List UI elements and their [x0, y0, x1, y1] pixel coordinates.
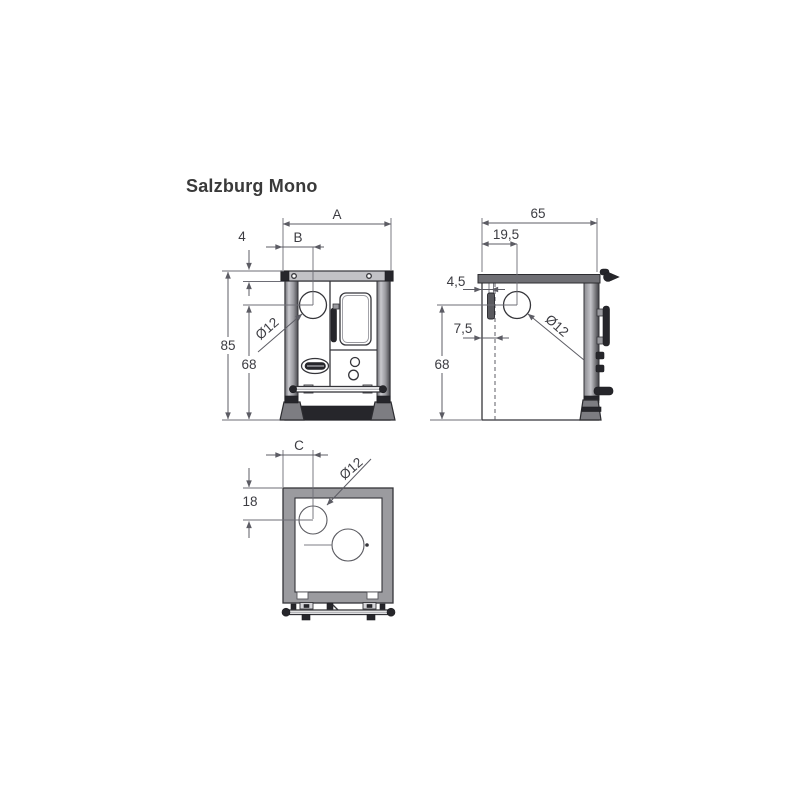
dim-label-diameter: Ø12	[542, 312, 571, 340]
front-top-plate	[281, 271, 393, 281]
side-plate-knob-tip	[611, 274, 619, 281]
control-knob-lower	[349, 370, 359, 380]
dim-label-C: C	[294, 438, 304, 453]
oven-door-handle	[331, 308, 337, 342]
hotplate-dot	[365, 543, 369, 547]
front-view: A B 4 85 68 Ø12	[216, 207, 395, 420]
front-left-pillar	[285, 281, 298, 402]
control-knob-upper	[351, 358, 360, 367]
side-top-plate	[478, 275, 600, 284]
dim-label-B: B	[293, 230, 302, 245]
side-door-handle	[603, 306, 610, 346]
oven-handle-bracket	[333, 304, 339, 309]
side-hinge-lower	[596, 365, 604, 372]
front-left-foot	[280, 402, 304, 420]
top-latch-lever	[333, 605, 338, 610]
top-view: C 18 Ø12	[238, 438, 395, 620]
dim-label-85: 85	[220, 338, 235, 353]
side-towel-bar-end	[594, 387, 613, 395]
front-left-pillar-band	[285, 396, 298, 403]
side-foot-band	[582, 407, 601, 412]
dim-label-68: 68	[434, 357, 449, 372]
hotplate-ring	[332, 529, 364, 561]
front-plate-bolt-left	[292, 274, 297, 279]
front-right-pillar	[377, 281, 390, 402]
top-bar-cap-right	[387, 608, 395, 616]
dim-label-A: A	[332, 207, 341, 222]
towel-bar-cap-left	[289, 386, 296, 393]
oven-window	[340, 293, 371, 345]
dim-label-diameter: Ø12	[252, 315, 281, 343]
dim-label-65: 65	[530, 206, 545, 221]
top-bar-cap-left	[282, 608, 290, 616]
front-right-foot	[371, 402, 395, 420]
front-plate-cap-right	[385, 271, 393, 281]
towel-bar-cap-right	[379, 386, 386, 393]
dim-label-diameter: Ø12	[336, 455, 365, 483]
top-bracket-slot-right	[367, 605, 372, 608]
flue-collar-flange	[488, 293, 495, 319]
dim-label-4: 4	[238, 229, 246, 244]
top-stub-foot-left	[302, 615, 310, 621]
stove-dimension-drawing: A B 4 85 68 Ø12	[0, 0, 800, 800]
dim-label-19-5: 19,5	[493, 227, 519, 242]
dim-label-7-5: 7,5	[454, 321, 473, 336]
cooktop-tab-left	[297, 592, 308, 599]
dim-label-4-5: 4,5	[447, 274, 466, 289]
front-right-pillar-band	[377, 396, 390, 403]
cooktop-tab-right	[367, 592, 378, 599]
dim-label-18: 18	[242, 494, 257, 509]
top-stub-foot-right	[367, 615, 375, 621]
front-base-band	[293, 406, 383, 420]
technical-drawing-page: Salzburg Mono	[0, 0, 800, 800]
front-plate-bolt-right	[367, 274, 372, 279]
dim-label-68: 68	[241, 357, 256, 372]
side-hinge-upper	[596, 352, 604, 359]
side-view: 65 19,5 4,5 7,5 68 Ø12	[430, 206, 619, 420]
front-plate-cap-left	[281, 271, 289, 281]
top-bracket-slot-left	[304, 605, 309, 608]
